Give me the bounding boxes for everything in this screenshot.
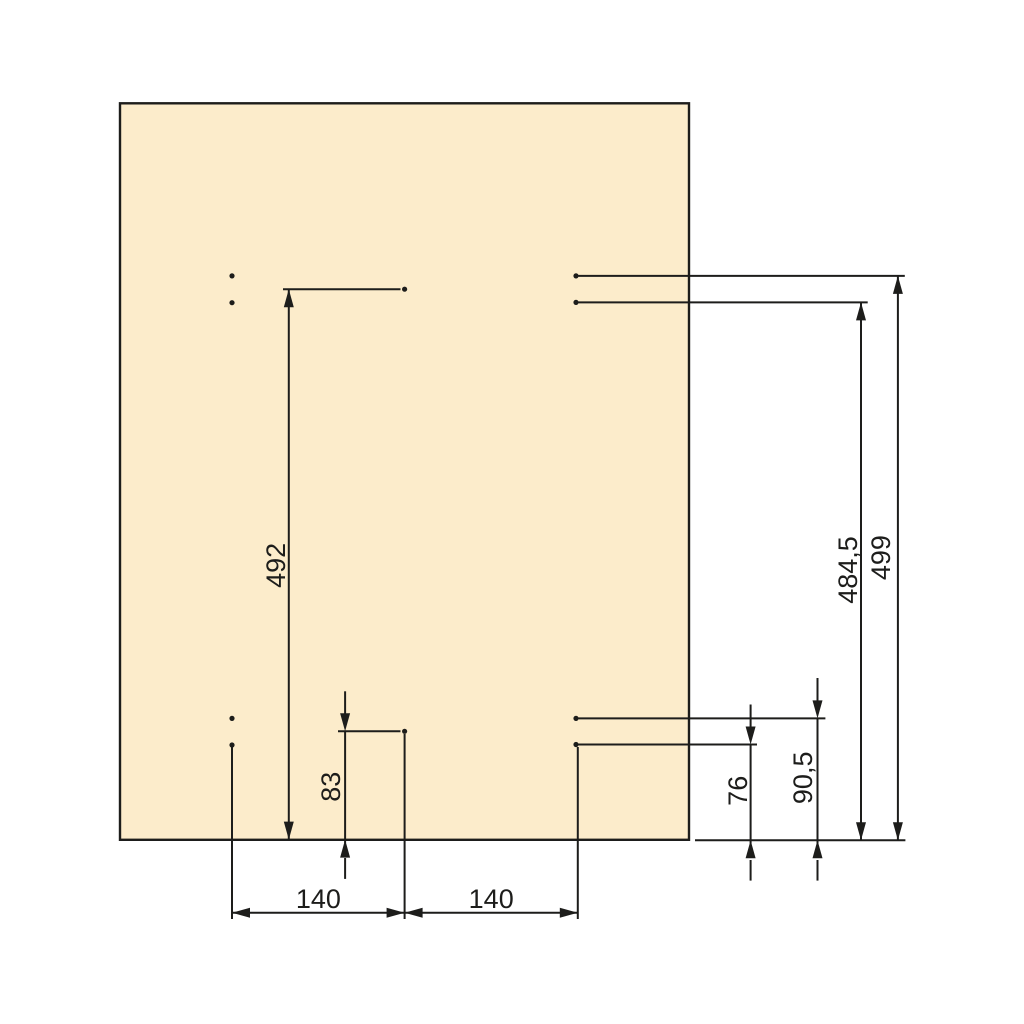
svg-text:140: 140 xyxy=(296,884,341,914)
svg-text:484,5: 484,5 xyxy=(833,536,863,604)
svg-text:83: 83 xyxy=(316,772,346,802)
svg-text:499: 499 xyxy=(866,535,896,580)
svg-text:140: 140 xyxy=(469,884,514,914)
svg-text:492: 492 xyxy=(261,543,291,588)
svg-text:90,5: 90,5 xyxy=(788,752,818,805)
svg-text:76: 76 xyxy=(723,776,753,806)
